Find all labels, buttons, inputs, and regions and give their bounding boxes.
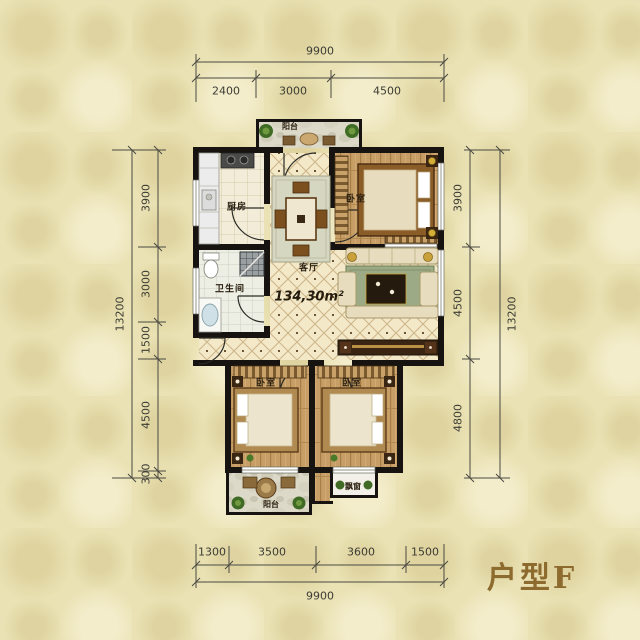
dim-bottom-seg-3: 3600 xyxy=(347,547,375,558)
lamp xyxy=(429,230,436,237)
coffee-table xyxy=(366,274,406,304)
label-balcony-bottom: 阳台 xyxy=(263,501,279,509)
dim-right-seg-1: 3900 xyxy=(453,184,464,212)
room-entry-floor xyxy=(199,338,270,360)
floor-lamp xyxy=(424,253,433,262)
dining-set xyxy=(272,176,330,262)
label-bay-window: 飘窗 xyxy=(345,483,361,491)
dim-top-seg-3: 4500 xyxy=(373,86,401,97)
plant-icon xyxy=(247,455,254,462)
dim-left-seg-4: 4500 xyxy=(141,401,152,429)
balcony-table xyxy=(300,133,318,145)
dim-bottom-seg-4: 1500 xyxy=(411,547,439,558)
dining-chair xyxy=(293,245,309,256)
dim-top-total: 9900 xyxy=(306,46,334,57)
sofa-short xyxy=(346,306,438,318)
outside-landing-floor xyxy=(315,473,330,502)
dim-bottom-seg-2: 3500 xyxy=(258,547,286,558)
floor-lamp xyxy=(348,253,357,262)
dim-left-seg-5: 300 xyxy=(141,464,152,485)
dim-bottom-total: 9900 xyxy=(306,591,334,602)
dim-bottom-seg-1: 1300 xyxy=(198,547,226,558)
balcony-chair xyxy=(243,477,257,488)
dim-left-seg-2: 3000 xyxy=(141,270,152,298)
label-bathroom: 卫生间 xyxy=(215,286,245,295)
plan-title: 户型F xyxy=(487,564,577,594)
basin xyxy=(202,304,218,326)
pillow xyxy=(372,394,383,416)
label-living-area: 134,30m² xyxy=(274,291,343,304)
dining-chair xyxy=(316,210,327,228)
floorplan-page: 9900 2400 3000 4500 1300 3500 3600 1500 … xyxy=(0,0,640,640)
label-living-room: 客厅 xyxy=(299,265,319,274)
toilet xyxy=(204,260,218,278)
pillow xyxy=(237,394,248,416)
armchair xyxy=(420,272,438,306)
label-kitchen: 厨房 xyxy=(227,204,247,213)
wardrobe xyxy=(234,366,306,378)
plant-icon xyxy=(336,481,345,490)
floorplan-drawing xyxy=(0,0,640,640)
wardrobe xyxy=(318,366,394,378)
label-bedroom-master: 卧室 xyxy=(346,196,366,205)
dim-right-seg-3: 4800 xyxy=(453,404,464,432)
pillow xyxy=(372,422,383,444)
dining-chair xyxy=(293,182,309,193)
dim-left-total: 13200 xyxy=(115,297,126,332)
label-bedroom-left: 卧室 xyxy=(256,380,276,389)
dim-right-total: 13200 xyxy=(507,297,518,332)
pillow xyxy=(418,202,430,228)
balcony-chair xyxy=(281,477,295,488)
pillow xyxy=(237,422,248,444)
balcony-chair xyxy=(283,136,295,145)
balcony-chair xyxy=(323,136,335,145)
dim-left-seg-3: 1500 xyxy=(141,326,152,354)
dim-top-seg-2: 3000 xyxy=(279,86,307,97)
pillow xyxy=(418,172,430,198)
dim-left-seg-1: 3900 xyxy=(141,184,152,212)
dim-right-seg-2: 4500 xyxy=(453,289,464,317)
kitchen-stove xyxy=(221,153,254,168)
plant-icon xyxy=(331,455,338,462)
lamp xyxy=(429,158,436,165)
plant-icon xyxy=(364,481,373,490)
dim-top-seg-1: 2400 xyxy=(212,86,240,97)
label-balcony-top: 阳台 xyxy=(282,123,298,131)
dining-chair xyxy=(275,210,286,228)
label-bedroom-right: 卧室 xyxy=(342,380,362,389)
